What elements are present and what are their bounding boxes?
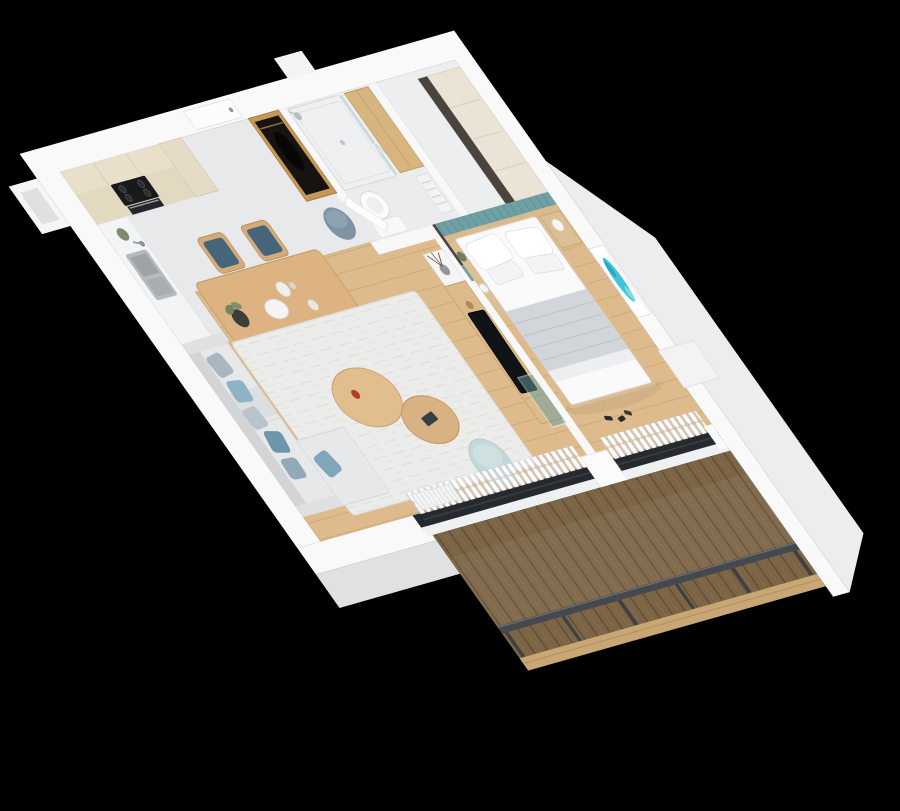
floor-plan-render: [0, 0, 900, 811]
render-stage: [0, 0, 900, 811]
